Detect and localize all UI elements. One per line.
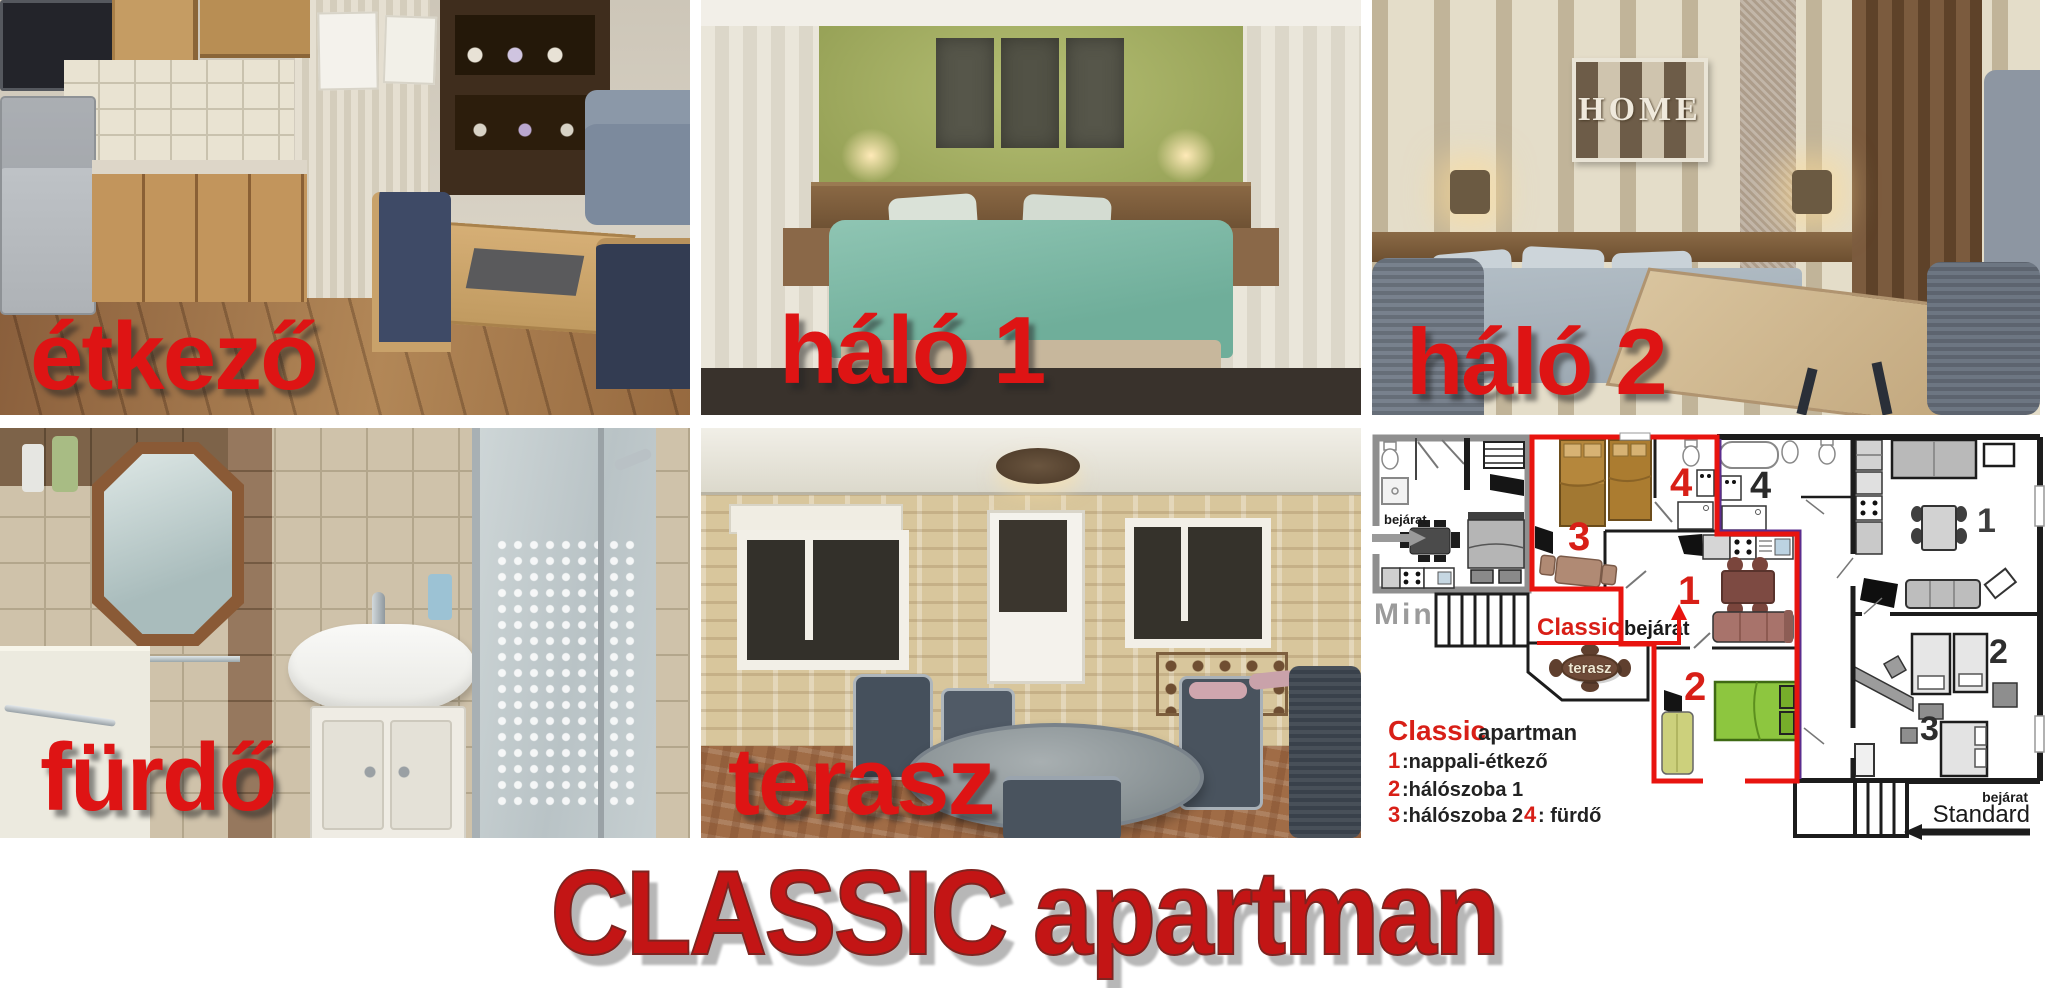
terrace-label: terasz <box>1568 660 1611 677</box>
air-freshener <box>52 436 78 492</box>
blue-cup <box>428 574 452 620</box>
picture-frame <box>317 11 378 90</box>
standard-room2-number: 2 <box>1989 633 2008 671</box>
home-sign-frame: HOME <box>1572 58 1708 162</box>
classic-room2-number: 2 <box>1684 665 1706 709</box>
standard-room3-number: 3 <box>1920 710 1939 748</box>
wall-lamp-lantern <box>1792 170 1832 214</box>
legend-item-2-text: :hálószoba 1 <box>1402 779 1523 801</box>
classic-entrance-brand: Classic <box>1537 614 1621 641</box>
picture-frame <box>383 15 437 85</box>
tile-backsplash <box>64 60 294 160</box>
cabinet-door <box>390 720 452 830</box>
couch <box>585 90 690 225</box>
shower-dot-pattern <box>495 538 640 808</box>
collage-title: CLASSIC apartman <box>102 844 1945 982</box>
photo-etkezo: étkező <box>0 0 690 415</box>
ceiling-lamp <box>996 448 1080 484</box>
photo-terasz: terasz <box>701 428 1361 838</box>
standard-bath-number: 4 <box>1750 465 1771 507</box>
standard-room1-number: 1 <box>1977 502 1996 540</box>
patio-chair-front <box>1003 776 1121 838</box>
collage-canvas: étkező háló 1 HOME <box>0 0 2048 988</box>
standard-name-label: Standard <box>1933 801 2030 828</box>
room-label-furdo: fürdő <box>40 730 275 826</box>
legend-item-4-num: 4 <box>1524 802 1537 827</box>
legend-item-3-text: :hálószoba 2 <box>1402 805 1523 827</box>
door-glass <box>999 520 1067 612</box>
legend-item-4-text: : fürdő <box>1538 805 1601 827</box>
wall-lamp-glow <box>1156 128 1216 183</box>
shower-frame-bar <box>472 428 480 838</box>
kitchen-counter <box>92 160 307 174</box>
legend-rest: apartman <box>1478 720 1577 745</box>
table-placemat <box>466 248 585 296</box>
classic-room3-number: 3 <box>1568 515 1590 559</box>
room-label-etkezo: étkező <box>30 309 317 405</box>
upper-cabinet <box>200 0 310 58</box>
window-right-divider <box>1181 527 1188 621</box>
photo-halo1: háló 1 <box>701 0 1361 415</box>
shelf-cubby <box>455 95 595 150</box>
tree-art-panel <box>1001 38 1059 148</box>
ceiling <box>701 0 1361 26</box>
photo-halo2: HOME háló 2 <box>1372 0 2040 415</box>
window-right <box>1125 518 1271 648</box>
spray-can <box>22 444 44 492</box>
home-sign-text: HOME <box>1578 91 1702 129</box>
tree-art-panel <box>936 38 994 148</box>
shelf-cubby <box>455 15 595 75</box>
pink-cushion <box>1189 682 1247 699</box>
legend-item-1-num: 1 <box>1388 748 1400 773</box>
room-label-halo1: háló 1 <box>779 303 1044 399</box>
dining-chair <box>372 192 451 352</box>
legend-item-2-num: 2 <box>1388 776 1400 801</box>
mirror-glass <box>104 454 232 634</box>
room-label-terasz: terasz <box>728 734 994 830</box>
photo-furdo: fürdő <box>0 428 690 838</box>
tree-art-panel <box>1066 38 1124 148</box>
wall-lamp-lantern <box>1450 170 1490 214</box>
window-left <box>737 530 909 670</box>
wall-lamp-glow <box>841 128 901 183</box>
wicker-chair <box>1927 262 2040 415</box>
room-label-halo2: háló 2 <box>1406 315 1666 409</box>
window-left-divider <box>805 540 813 640</box>
classic-bath-number: 4 <box>1670 461 1693 505</box>
dining-chair <box>596 238 690 389</box>
cabinet-door <box>322 720 384 830</box>
shower-frame-bar <box>598 428 604 838</box>
mini-entrance-label: bejárat <box>1384 512 1427 527</box>
legend-item-1-text: :nappali-étkező <box>1402 751 1548 773</box>
fridge <box>0 96 96 315</box>
legend-brand: Classic <box>1388 715 1486 746</box>
sink-basin <box>288 624 476 712</box>
floorplan: bejárat Mini terasz <box>1372 428 2048 873</box>
lower-cabinets <box>92 174 307 302</box>
wicker-chair-dark <box>1289 666 1361 838</box>
classic-room1-number: 1 <box>1678 569 1700 613</box>
entry-stairs <box>1436 594 1528 646</box>
legend-item-3-num: 3 <box>1388 802 1400 827</box>
